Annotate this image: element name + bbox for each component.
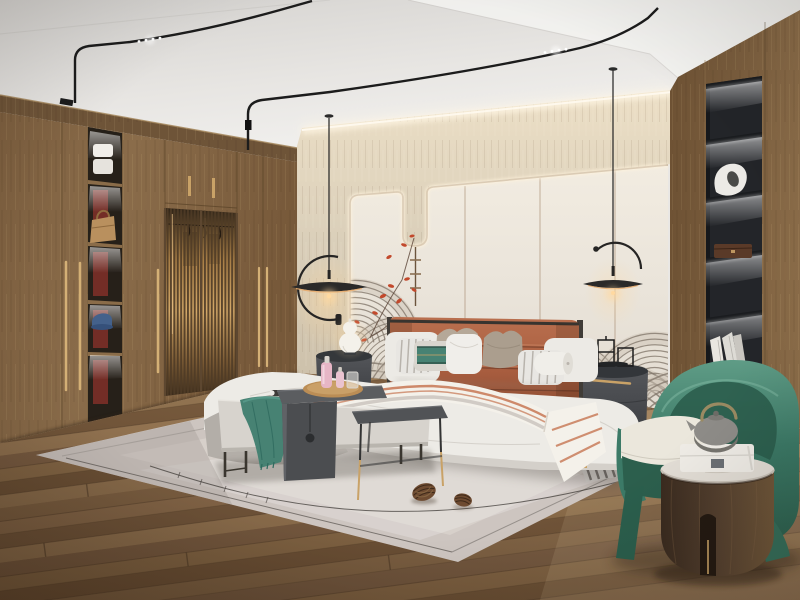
bedroom-render xyxy=(0,0,800,600)
bedroom-scene xyxy=(0,0,800,600)
vignette xyxy=(0,0,800,600)
